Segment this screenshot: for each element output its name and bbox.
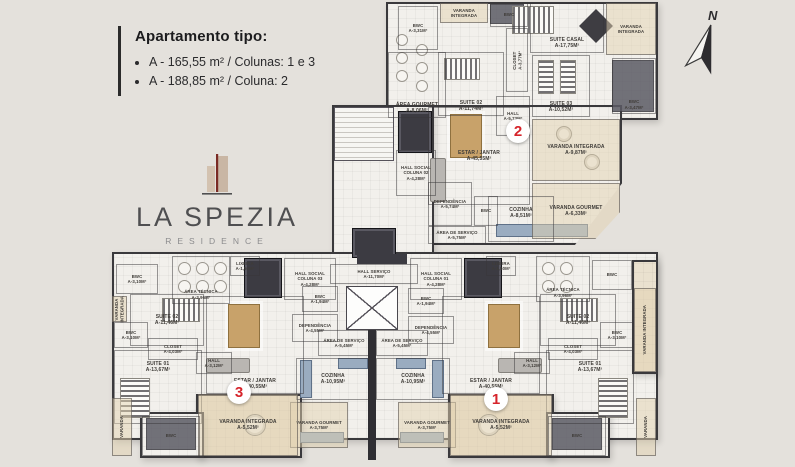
room-bwc: BWCA-1,94m² xyxy=(302,286,338,312)
room-label: ÁREA DE SERVIÇOA-5,45m² xyxy=(323,338,364,349)
room-suite-casal: SUITE CASALA-17,75m² xyxy=(530,3,604,53)
room-varanda-gourmet: VARANDA GOURMETA-3,75m² xyxy=(398,402,456,448)
service-duct xyxy=(357,254,407,264)
room-varanda-integrada: VARANDA INTEGRADA xyxy=(112,296,127,322)
room-varanda-integrada: VARANDA INTEGRADA xyxy=(440,3,488,23)
room-label: ESTAR / JANTARA-45,55m² xyxy=(458,150,500,163)
room-varanda-integrada: VARANDA INTEGRADAA-5,52m² xyxy=(198,394,298,456)
room-label: HALL SOCIAL COLUNA 02A-4,28m² xyxy=(397,165,435,181)
room-label: DEPENDÊNCIAA-5,74m² xyxy=(434,199,466,210)
room-label: SUITE 02A-11,46m² xyxy=(155,314,179,327)
room-label: BWCA-3,31m² xyxy=(409,23,428,34)
room-label: HALLA-3,12m² xyxy=(523,358,542,369)
room-label: SUITE 01A-13,67m² xyxy=(146,351,171,374)
room-label: VARANDA INTEGRADA xyxy=(642,305,647,354)
room-suite-03: SUITE 03A-10,52m² xyxy=(532,55,590,117)
room-label: BWCA-1,94m² xyxy=(417,296,436,307)
room-bwc: BWCA-3,10m² xyxy=(600,322,634,348)
room-bwc: BWCA-3,47m² xyxy=(612,58,656,114)
room-label: BWC xyxy=(504,12,515,17)
room-label: COZINHAA-10,95m² xyxy=(401,373,426,386)
room-bwc: BWCA-3,10m² xyxy=(116,264,158,294)
room-varanda: VARANDA xyxy=(636,398,656,456)
room-bwc: BWCA-3,10m² xyxy=(114,322,148,348)
room-label: BWC xyxy=(572,433,583,438)
room-label: VARANDA INTEGRADA xyxy=(441,8,487,19)
room-label: CLOSETA-3,77m² xyxy=(512,51,523,70)
room-label: COZINHAA-8,51m² xyxy=(509,197,532,220)
room-label: VARANDA GOURMETA-3,75m² xyxy=(404,420,450,431)
room-bwc: BWC xyxy=(490,3,528,27)
room-bwc: BWCA-1,94m² xyxy=(408,288,444,314)
room-label: LIXEIRAA-1,50m² xyxy=(236,261,255,272)
room-hall-servico: HALL SERVIÇOA-11,70m² xyxy=(330,264,418,284)
ventilation-shaft xyxy=(346,286,398,330)
room-label: VARANDA INTEGRADAA-5,52m² xyxy=(472,419,529,432)
room-varanda-integrada: VARANDA INTEGRADAA-9,87m² xyxy=(532,119,620,181)
room-bwc: BWC xyxy=(548,416,606,456)
room-label: ÁREA DE SERVIÇOA-5,75m² xyxy=(436,230,477,241)
room-area-de-servico: ÁREA DE SERVIÇOA-5,75m² xyxy=(428,226,486,244)
room-label: VARANDA INTEGRADA xyxy=(607,24,655,35)
room-label: ÁREA DE SERVIÇOA-5,45m² xyxy=(381,338,422,349)
room-suite-01: SUITE 01A-13,67m² xyxy=(546,350,634,424)
room-area-de-servico: ÁREA DE SERVIÇOA-5,45m² xyxy=(318,330,370,356)
room-hall: HALLA-3,12m² xyxy=(514,352,550,374)
room-label: BWC xyxy=(481,208,492,213)
room-label: HALL SOCIAL COLUNA 01A-4,28m² xyxy=(411,271,461,287)
room-label: HALL SOCIAL COLUNA 03A-4,28m² xyxy=(285,271,335,287)
room-label: HALLA-3,12m² xyxy=(205,358,224,369)
room-label: VARANDA xyxy=(643,416,648,438)
floor-plan: BWCA-3,31m²ÁREA GOURMETA-8,06m²VARANDA I… xyxy=(0,0,795,467)
room-label: BWCA-3,47m² xyxy=(625,99,644,113)
room-label: VARANDA GOURMETA-3,75m² xyxy=(296,420,342,431)
room-label: LIXEIRAA-1,50m² xyxy=(492,261,511,272)
unit-marker-1: 1 xyxy=(484,387,508,411)
stairs xyxy=(334,107,394,161)
room-label: BWCA-3,10m² xyxy=(122,330,141,341)
room-label: VARANDA INTEGRADA xyxy=(114,296,125,322)
room-label: BWCA-3,10m² xyxy=(128,274,147,285)
room-label: SUITE 03A-10,52m² xyxy=(549,101,574,117)
unit-marker-2: 2 xyxy=(506,119,530,143)
room-label: SUITE CASALA-17,75m² xyxy=(550,37,584,53)
room-estar-jantar: ESTAR / JANTARA-40,55m² xyxy=(442,296,540,394)
room-varanda-integrada: VARANDA INTEGRADA xyxy=(606,3,656,55)
room-label: BWCA-1,94m² xyxy=(311,294,330,305)
room-area-de-servico: ÁREA DE SERVIÇOA-5,45m² xyxy=(376,330,428,356)
room-label: SUITE 02A-11,46m² xyxy=(566,314,590,327)
unit-marker-3: 3 xyxy=(227,380,251,404)
room-lixeira: LIXEIRAA-1,50m² xyxy=(230,256,260,276)
room-varanda-integrada: VARANDA INTEGRADA xyxy=(634,288,656,372)
room-label: VARANDA xyxy=(119,416,124,438)
room-bwc: BWC xyxy=(592,260,632,290)
room-label: VARANDA INTEGRADAA-9,87m² xyxy=(547,144,604,157)
room-cozinha: COZINHAA-10,95m² xyxy=(376,358,450,400)
room-bwc: BWCA-3,31m² xyxy=(398,6,438,50)
room-lixeira: LIXEIRAA-1,50m² xyxy=(486,256,516,276)
room-label: VARANDA GOURMETA-6,33m² xyxy=(550,205,603,218)
room-label: BWCA-3,10m² xyxy=(608,330,627,341)
room-label: SUITE 01A-13,67m² xyxy=(578,351,603,374)
room-label: BWC xyxy=(607,272,618,277)
room-cozinha: COZINHAA-10,95m² xyxy=(296,358,370,400)
room-label: VARANDA INTEGRADAA-5,52m² xyxy=(219,419,276,432)
room-label: COZINHAA-10,95m² xyxy=(321,373,346,386)
room-bwc: BWC xyxy=(474,196,498,226)
room-hall: HALLA-3,12m² xyxy=(196,352,232,374)
room-hall-social-coluna-02: HALL SOCIAL COLUNA 02A-4,28m² xyxy=(396,150,436,196)
room-closet: CLOSETA-3,77m² xyxy=(506,28,528,92)
room-label: HALL SERVIÇOA-11,70m² xyxy=(357,269,390,280)
room-varanda: VARANDA xyxy=(112,398,132,456)
room-bwc: BWC xyxy=(142,416,200,456)
room-label: BWC xyxy=(166,433,177,438)
room-varanda-gourmet: VARANDA GOURMETA-3,75m² xyxy=(290,402,348,448)
room-estar-jantar: ESTAR / JANTARA-40,55m² xyxy=(206,296,304,394)
